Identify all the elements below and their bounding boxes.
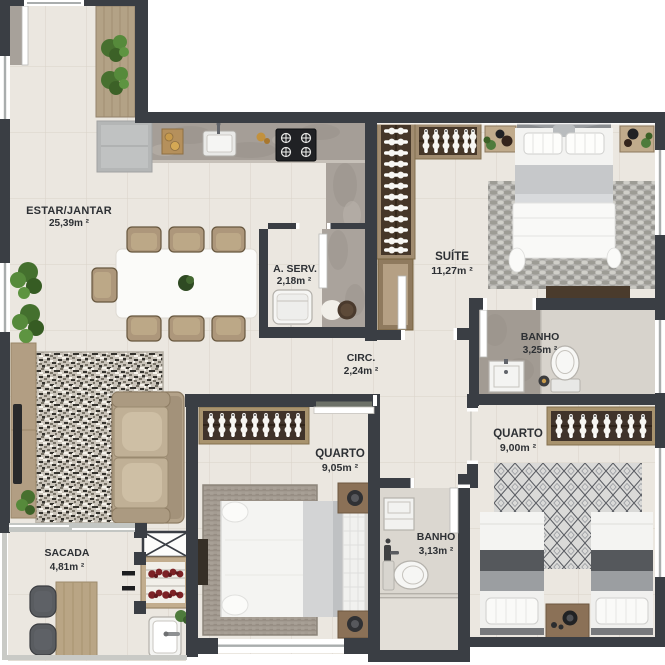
svg-text:25,39m ²: 25,39m ² (49, 218, 90, 229)
svg-text:2,18m ²: 2,18m ² (277, 276, 312, 287)
svg-text:A. SERV.: A. SERV. (273, 263, 317, 275)
svg-text:QUARTO: QUARTO (493, 428, 543, 440)
svg-text:9,05m ²: 9,05m ² (322, 462, 359, 474)
svg-text:3,25m ²: 3,25m ² (523, 345, 558, 356)
svg-text:BANHO: BANHO (521, 331, 560, 343)
svg-text:11,27m ²: 11,27m ² (431, 265, 473, 277)
svg-text:SUÍTE: SUÍTE (435, 250, 469, 263)
svg-text:CIRC.: CIRC. (347, 352, 376, 364)
svg-text:9,00m ²: 9,00m ² (500, 442, 537, 454)
svg-text:ESTAR/JANTAR: ESTAR/JANTAR (26, 205, 112, 217)
svg-text:BANHO: BANHO (417, 531, 456, 543)
svg-text:SACADA: SACADA (45, 547, 90, 559)
svg-text:QUARTO: QUARTO (315, 448, 365, 460)
svg-text:4,81m ²: 4,81m ² (50, 562, 85, 573)
svg-text:2,24m ²: 2,24m ² (344, 366, 379, 377)
svg-text:3,13m ²: 3,13m ² (419, 546, 454, 557)
